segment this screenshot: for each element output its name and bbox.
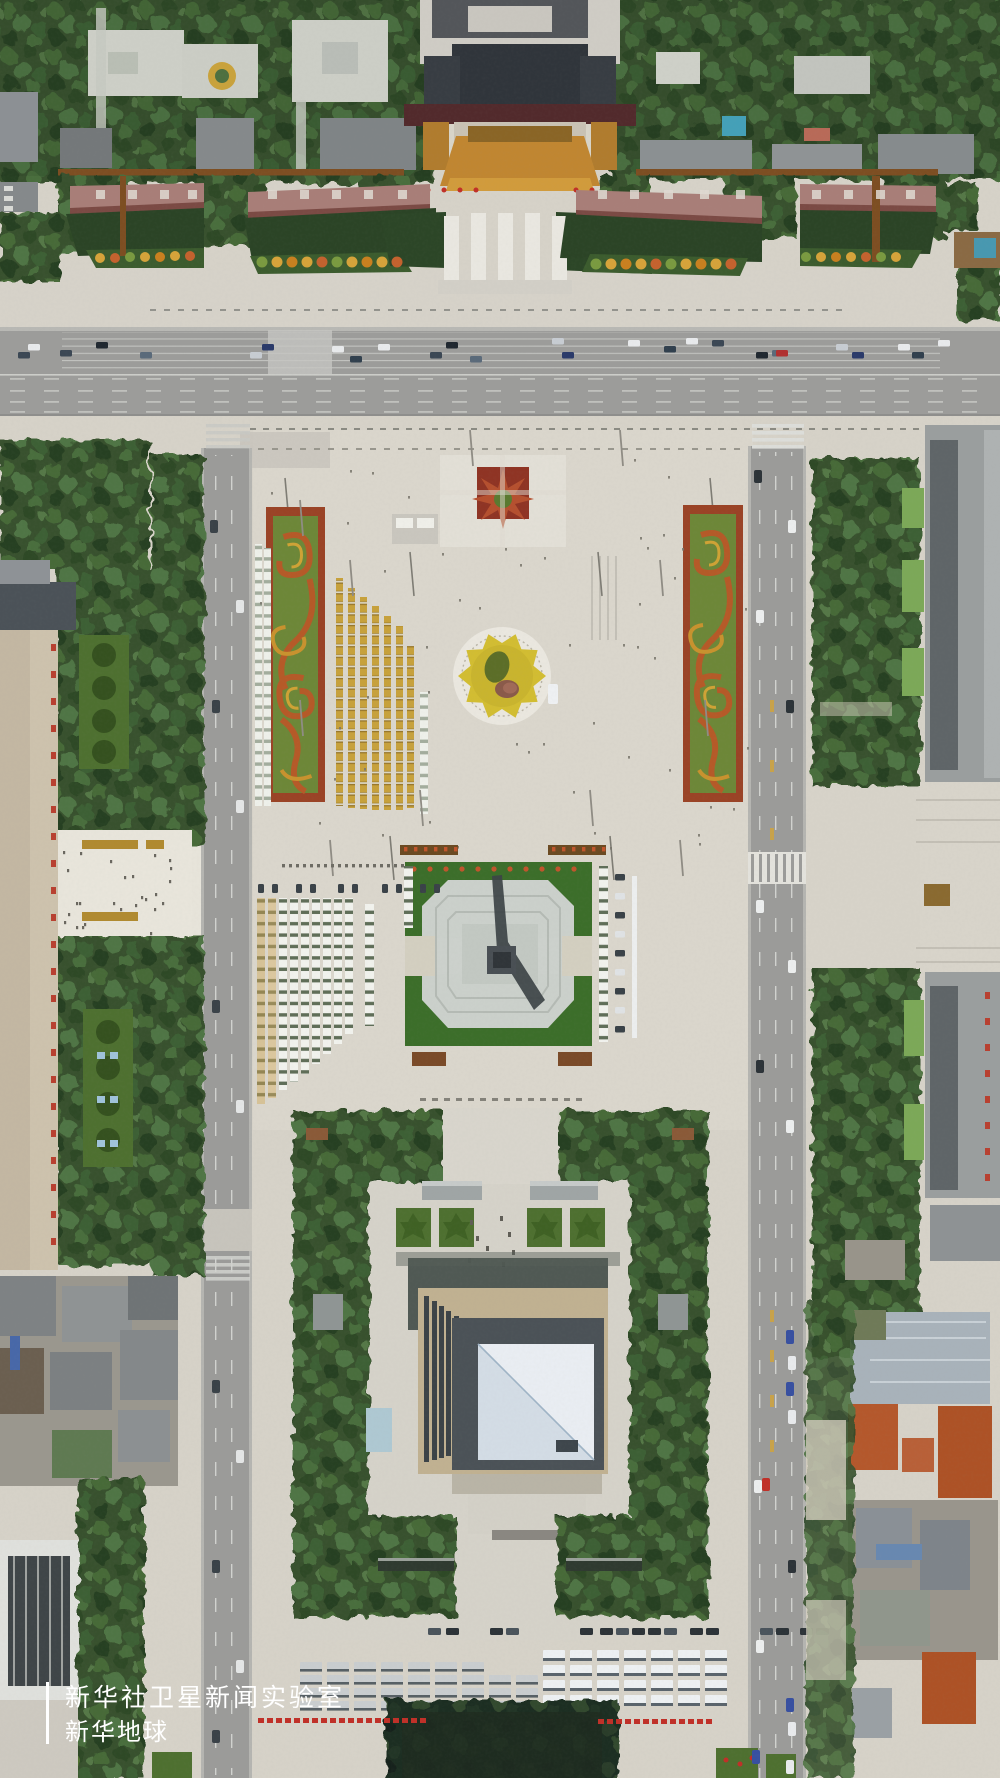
svg-text:新华地球: 新华地球 [65,1719,169,1746]
svg-text:新华社卫星新闻实验室: 新华社卫星新闻实验室 [65,1684,345,1712]
